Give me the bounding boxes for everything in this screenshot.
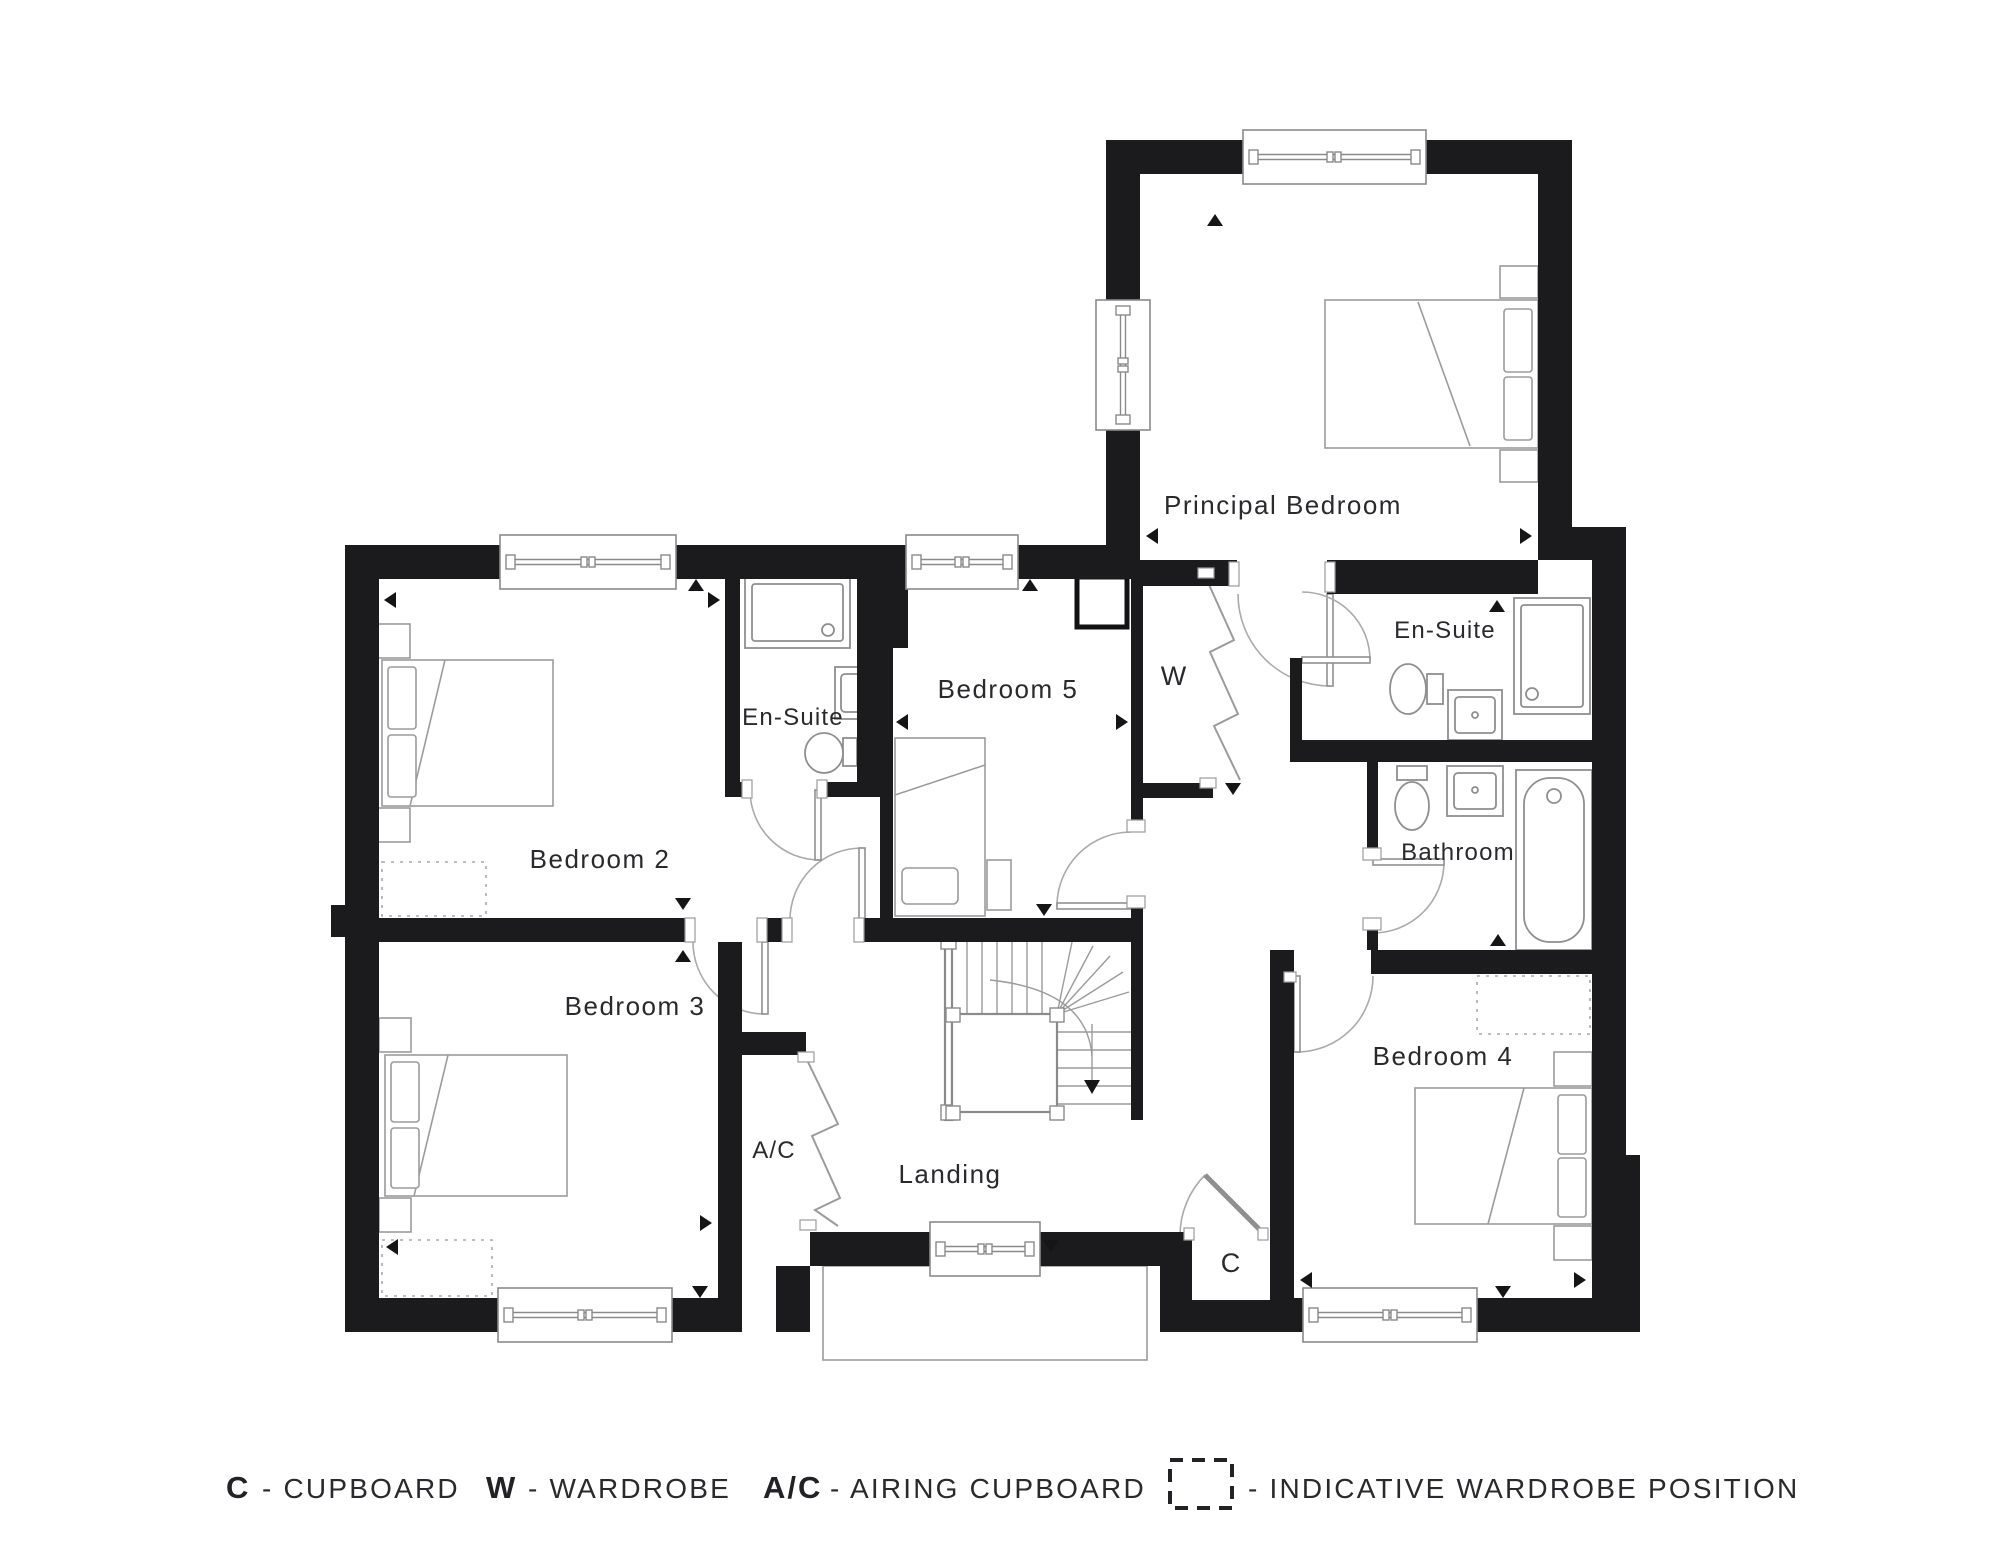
window-bedroom3-bottom: [498, 1288, 672, 1342]
bifold-door-airing-cupboard: [808, 1062, 840, 1226]
legend-symbol-cupboard: C: [226, 1470, 250, 1505]
room-label-landing: Landing: [898, 1159, 1001, 1189]
room-label-bedroom2: Bedroom 2: [530, 844, 671, 874]
legend-label-cupboard: - CUPBOARD: [262, 1473, 460, 1504]
bed-icon-bedroom3: [379, 1018, 567, 1232]
bed-icon-principal: [1325, 266, 1538, 482]
door-principal-bedroom: [1238, 594, 1333, 686]
boxed-service-square: [1077, 577, 1127, 627]
legend-label-airing-cupboard: - AIRING CUPBOARD: [830, 1473, 1146, 1504]
room-label-principal-bedroom: Principal Bedroom: [1164, 490, 1402, 520]
door-bedroom5: [1057, 832, 1131, 909]
window-principal-left: [1096, 300, 1150, 430]
room-label-wardrobe: W: [1161, 661, 1187, 691]
room-label-ensuite-bedroom2: En-Suite: [742, 704, 844, 731]
window-bedroom2-top: [500, 535, 676, 589]
stairs: [941, 934, 1131, 1120]
door-bathroom: [1373, 859, 1444, 933]
legend-symbol-airing-cupboard: A/C: [763, 1470, 822, 1505]
bed-icon-bedroom5: [895, 738, 1011, 916]
stairs-down-arrow-icon: [1084, 1080, 1100, 1094]
window-bedroom5-top: [906, 535, 1018, 589]
window-bedroom4-bottom: [1303, 1288, 1477, 1342]
legend: C - CUPBOARD W - WARDROBE A/C - AIRING C…: [226, 1460, 1799, 1508]
bed-icon-bedroom4: [1415, 1052, 1592, 1260]
legend-label-wardrobe: - WARDROBE: [528, 1473, 731, 1504]
room-label-bedroom3: Bedroom 3: [565, 991, 706, 1021]
door-ensuite-principal: [1302, 592, 1370, 663]
bed-icon-bedroom2: [378, 624, 553, 842]
window-principal-top: [1243, 130, 1426, 184]
door-cupboard: [1180, 1175, 1266, 1236]
legend-wardrobe-position-symbol-icon: [1170, 1460, 1232, 1508]
shower-icon-ensuite2: [745, 577, 850, 648]
room-label-bedroom5: Bedroom 5: [938, 674, 1079, 704]
sink-icon-ensuite-principal: [1448, 690, 1502, 740]
wardrobe-dashed-outline-bedroom4: [1477, 976, 1590, 1034]
door-bedroom2: [790, 848, 865, 920]
room-label-ensuite-principal: En-Suite: [1394, 617, 1496, 644]
bifold-door-wardrobe: [1206, 578, 1240, 780]
room-label-airing-cupboard: A/C: [752, 1137, 796, 1164]
toilet-icon-ensuite-principal: [1390, 664, 1443, 714]
room-label-bedroom4: Bedroom 4: [1373, 1041, 1514, 1071]
legend-symbol-wardrobe: W: [486, 1470, 517, 1505]
door-bedroom4: [1294, 976, 1373, 1052]
canopy-outline: [823, 1266, 1147, 1360]
window-landing-bottom: [930, 1222, 1040, 1276]
room-label-cupboard: C: [1221, 1248, 1242, 1278]
sink-icon-bathroom: [1447, 766, 1503, 816]
door-ensuite-bedroom2: [750, 790, 821, 860]
toilet-icon-bathroom: [1395, 766, 1429, 830]
shower-icon-ensuite-principal: [1514, 598, 1590, 714]
toilet-icon-ensuite2: [805, 733, 857, 773]
room-label-bathroom: Bathroom: [1401, 839, 1515, 866]
wardrobe-dashed-outline-bedroom3: [382, 1240, 492, 1296]
legend-label-wardrobe-position: - INDICATIVE WARDROBE POSITION: [1248, 1473, 1799, 1504]
floor-plan-svg: Principal Bedroom Bedroom 2 Bedroom 3 Be…: [0, 0, 2000, 1561]
wardrobe-dashed-outline-bedroom2: [382, 862, 486, 916]
bathtub-icon: [1516, 770, 1592, 950]
